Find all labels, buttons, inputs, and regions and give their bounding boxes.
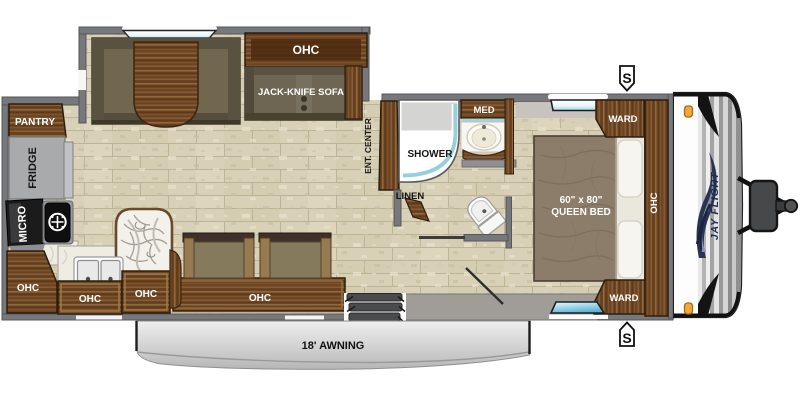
- svg-text:60" x 80": 60" x 80": [560, 195, 603, 206]
- svg-text:OHC: OHC: [17, 283, 39, 294]
- svg-text:JACK-KNIFE SOFA: JACK-KNIFE SOFA: [258, 87, 344, 98]
- svg-text:OHC: OHC: [293, 43, 320, 57]
- svg-text:S: S: [622, 330, 631, 346]
- svg-text:OHC: OHC: [135, 289, 157, 300]
- svg-text:PANTRY: PANTRY: [15, 117, 55, 128]
- svg-text:MICRO: MICRO: [16, 205, 30, 243]
- svg-text:OHC: OHC: [249, 293, 271, 304]
- svg-text:LINEN: LINEN: [396, 191, 425, 202]
- svg-text:18' AWNING: 18' AWNING: [302, 340, 365, 352]
- svg-text:QUEEN BED: QUEEN BED: [551, 207, 610, 218]
- svg-text:WARD: WARD: [608, 114, 637, 125]
- svg-text:S: S: [622, 70, 631, 86]
- svg-text:OHC: OHC: [649, 192, 660, 213]
- svg-text:SHOWER: SHOWER: [408, 149, 454, 160]
- svg-text:WARD: WARD: [609, 293, 638, 304]
- svg-text:ENT. CENTER: ENT. CENTER: [363, 118, 373, 174]
- svg-text:JAY FLIGHT: JAY FLIGHT: [709, 171, 721, 240]
- svg-text:MED: MED: [473, 105, 494, 116]
- svg-text:OHC: OHC: [79, 294, 101, 305]
- svg-text:FRIDGE: FRIDGE: [27, 147, 39, 189]
